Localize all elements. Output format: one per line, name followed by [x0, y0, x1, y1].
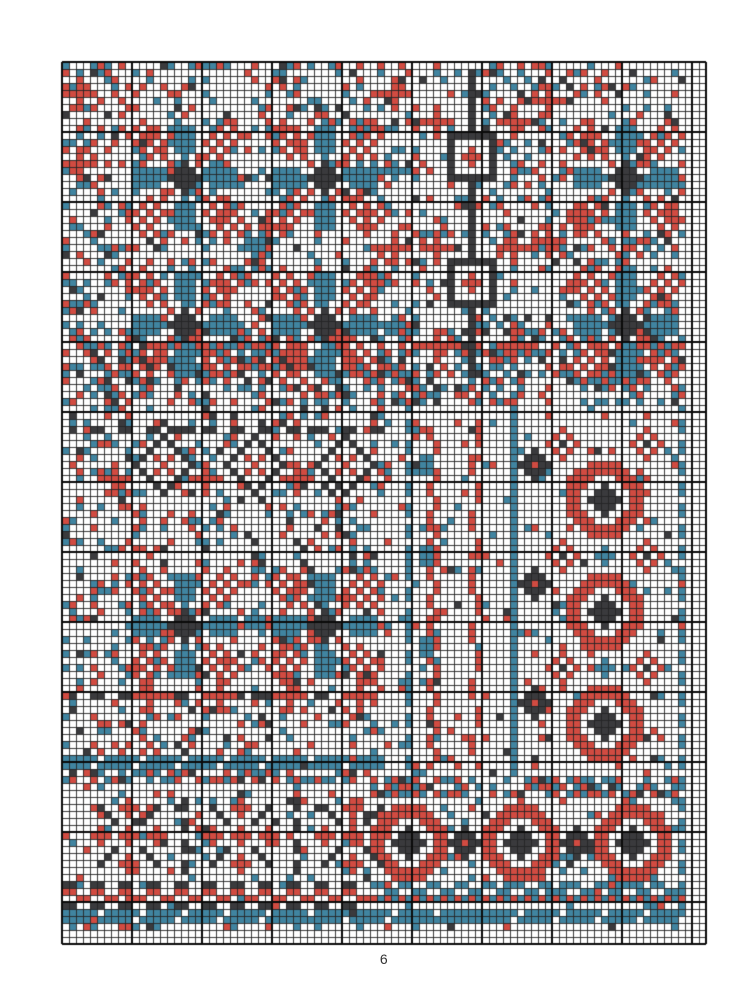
pattern-book-page: 6	[0, 0, 746, 1001]
cross-stitch-chart	[0, 0, 746, 1001]
page-number: 6	[0, 951, 746, 967]
cross-stitch-pattern-canvas	[0, 0, 746, 1001]
